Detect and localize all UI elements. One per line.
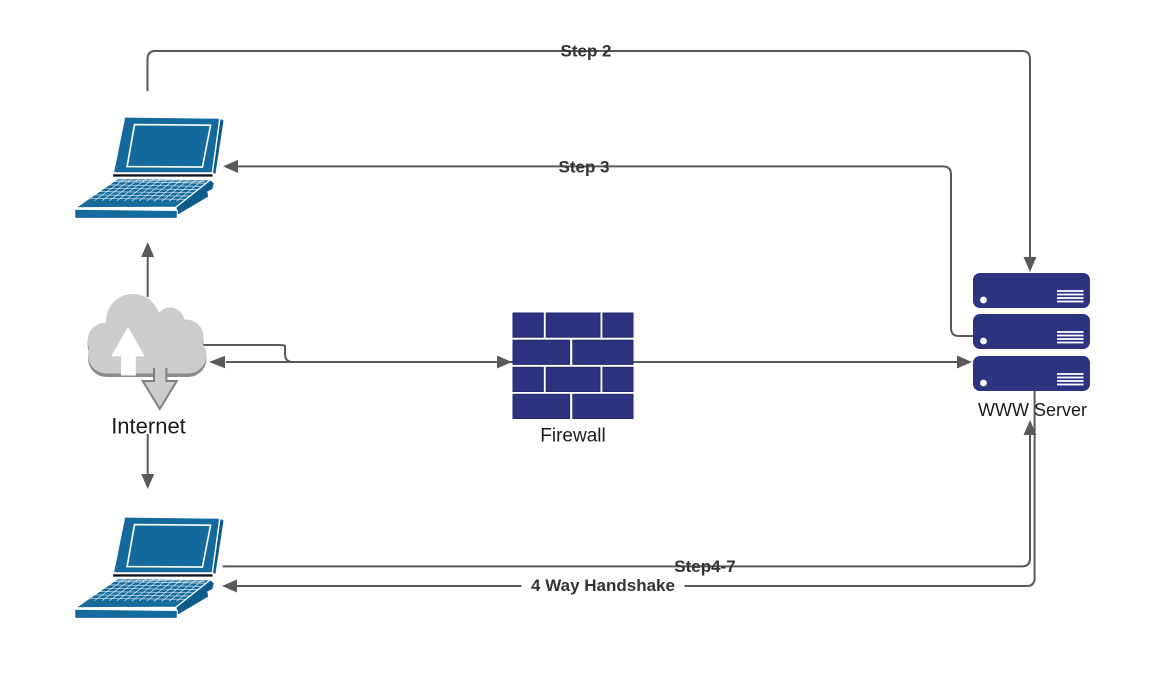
svg-text:Firewall: Firewall bbox=[540, 426, 605, 447]
svg-text:Internet: Internet bbox=[111, 414, 186, 439]
svg-text:Step 3: Step 3 bbox=[558, 158, 609, 177]
svg-text:4 Way Handshake: 4 Way Handshake bbox=[531, 576, 675, 595]
svg-text:Step 2: Step 2 bbox=[560, 42, 611, 61]
svg-text:WWW Server: WWW Server bbox=[978, 400, 1087, 420]
svg-text:Step4-7: Step4-7 bbox=[674, 557, 735, 576]
